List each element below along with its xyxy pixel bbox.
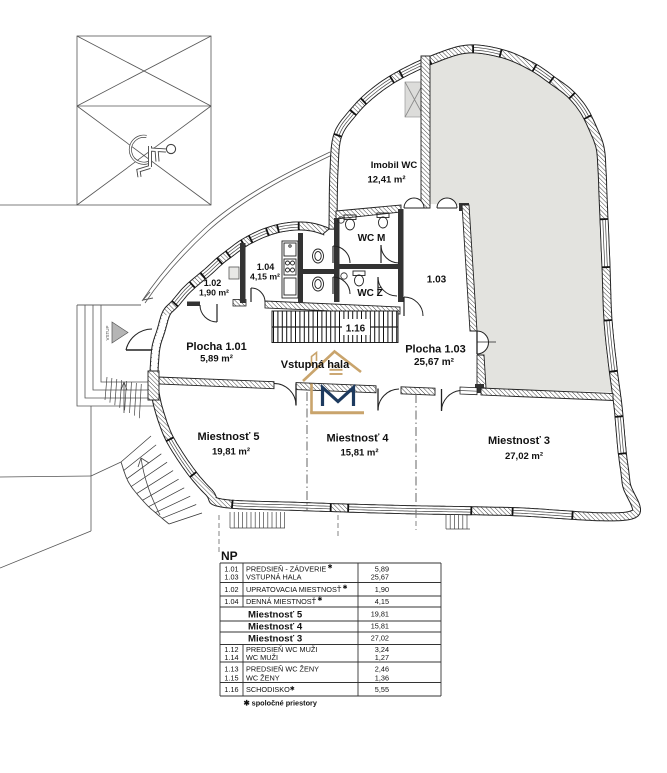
svg-text:DENNÁ MIESTNOSŤ ✱: DENNÁ MIESTNOSŤ ✱ [246,596,323,606]
svg-text:19,81: 19,81 [371,610,389,619]
svg-text:25,67 m²: 25,67 m² [414,357,455,368]
svg-text:12,41 m²: 12,41 m² [367,175,405,186]
svg-text:1,90 m²: 1,90 m² [199,288,229,298]
svg-text:VSTUPNÁ HALA: VSTUPNÁ HALA [246,573,302,582]
svg-text:1.15: 1.15 [224,674,238,683]
svg-text:SCHODISKO✱: SCHODISKO✱ [246,685,295,694]
svg-text:1.16: 1.16 [224,685,238,694]
svg-text:25,67: 25,67 [371,573,389,582]
svg-text:1.14: 1.14 [224,653,238,662]
svg-text:1,27: 1,27 [375,653,389,662]
svg-text:27,02 m²: 27,02 m² [505,451,543,462]
svg-text:Vstupná hala: Vstupná hala [281,359,350,371]
svg-text:1.04: 1.04 [224,597,238,606]
svg-text:UPRATOVACIA MIESTNOSŤ ✱: UPRATOVACIA MIESTNOSŤ ✱ [246,584,348,594]
svg-text:VSTUP: VSTUP [105,325,110,340]
svg-text:WC MUŽI: WC MUŽI [246,653,278,662]
svg-text:5,89 m²: 5,89 m² [200,354,233,365]
svg-text:WC M: WC M [358,233,386,244]
svg-text:19,81 m²: 19,81 m² [212,447,250,458]
svg-text:1.16: 1.16 [346,324,366,335]
svg-text:1.03: 1.03 [224,573,238,582]
svg-text:2,46: 2,46 [375,665,389,674]
svg-text:Plocha 1.03: Plocha 1.03 [405,344,466,356]
svg-text:27,02: 27,02 [371,634,389,643]
svg-text:NP: NP [221,549,238,563]
svg-text:Imobil WC: Imobil WC [371,160,418,171]
svg-text:5,55: 5,55 [375,685,389,694]
svg-text:Miestnosť 3: Miestnosť 3 [248,634,302,645]
svg-text:Miestnosť 5: Miestnosť 5 [197,431,259,443]
svg-text:✱ spoločné priestory: ✱ spoločné priestory [244,699,318,708]
svg-text:1,36: 1,36 [375,674,389,683]
svg-text:Plocha 1.01: Plocha 1.01 [186,341,247,353]
svg-text:1.03: 1.03 [427,275,447,286]
svg-text:15,81: 15,81 [371,622,389,631]
svg-text:Miestnosť 3: Miestnosť 3 [488,435,550,447]
svg-text:WC Ž: WC Ž [357,286,383,299]
svg-text:4,15: 4,15 [375,597,389,606]
svg-text:1.02: 1.02 [204,278,222,288]
svg-text:Miestnosť 4: Miestnosť 4 [326,433,389,445]
svg-text:Miestnosť 5: Miestnosť 5 [248,610,303,621]
svg-text:Miestnosť 4: Miestnosť 4 [248,622,303,633]
svg-text:15,81 m²: 15,81 m² [340,448,378,459]
svg-text:1,90: 1,90 [375,585,389,594]
svg-text:1.04: 1.04 [257,262,275,272]
svg-text:1.13: 1.13 [224,665,238,674]
svg-text:1.02: 1.02 [224,585,238,594]
svg-text:WC ŽENY: WC ŽENY [246,674,280,683]
svg-text:4,15 m²: 4,15 m² [250,272,280,282]
svg-text:PREDSIEŇ WC ŽENY: PREDSIEŇ WC ŽENY [246,665,319,674]
